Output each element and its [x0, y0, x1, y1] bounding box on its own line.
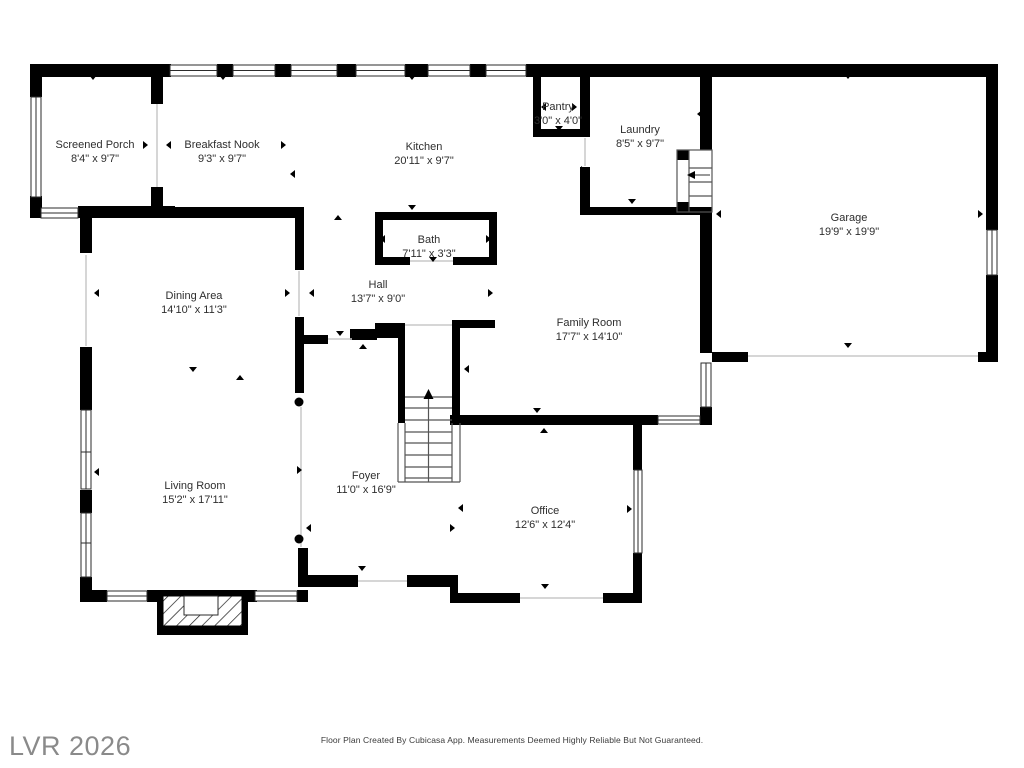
room-name: Living Room	[162, 479, 228, 493]
room-label-bath: Bath 7'11" x 3'3"	[402, 233, 455, 261]
room-label-breakfast-nook: Breakfast Nook 9'3" x 9'7"	[184, 138, 259, 166]
room-name: Dining Area	[161, 289, 227, 303]
room-dimensions: 8'4" x 9'7"	[56, 152, 135, 166]
room-dimensions: 17'7" x 14'10"	[556, 330, 622, 344]
floor-plan-page: Screened Porch 8'4" x 9'7" Breakfast Noo…	[0, 0, 1024, 768]
room-label-garage: Garage 19'9" x 19'9"	[819, 211, 879, 239]
room-name: Kitchen	[394, 140, 454, 154]
room-label-hall: Hall 13'7" x 9'0"	[351, 278, 405, 306]
room-name: Bath	[402, 233, 455, 247]
room-label-office: Office 12'6" x 12'4"	[515, 504, 575, 532]
room-name: Office	[515, 504, 575, 518]
room-name: Screened Porch	[56, 138, 135, 152]
room-dimensions: 7'11" x 3'3"	[402, 247, 455, 261]
room-dimensions: 11'0" x 16'9"	[336, 483, 396, 497]
room-dimensions: 9'3" x 9'7"	[184, 152, 259, 166]
room-name: Laundry	[616, 123, 664, 137]
room-name: Breakfast Nook	[184, 138, 259, 152]
room-dimensions: 3'0" x 4'0"	[534, 114, 582, 128]
room-name: Garage	[819, 211, 879, 225]
room-label-pantry: Pantry 3'0" x 4'0"	[534, 100, 582, 128]
fireplace	[157, 590, 248, 635]
room-dimensions: 13'7" x 9'0"	[351, 292, 405, 306]
staircase-main	[398, 389, 460, 482]
floor-plan-drawing	[0, 0, 1024, 768]
room-dimensions: 14'10" x 11'3"	[161, 303, 227, 317]
room-dimensions: 12'6" x 12'4"	[515, 518, 575, 532]
room-label-kitchen: Kitchen 20'11" x 9'7"	[394, 140, 454, 168]
room-label-laundry: Laundry 8'5" x 9'7"	[616, 123, 664, 151]
watermark-text: LVR 2026	[9, 731, 131, 762]
room-label-foyer: Foyer 11'0" x 16'9"	[336, 469, 396, 497]
steps-down-arrow	[687, 171, 695, 179]
room-dimensions: 15'2" x 17'11"	[162, 493, 228, 507]
room-dimensions: 8'5" x 9'7"	[616, 137, 664, 151]
room-name: Family Room	[556, 316, 622, 330]
room-name: Foyer	[336, 469, 396, 483]
room-dimensions: 19'9" x 19'9"	[819, 225, 879, 239]
room-name: Pantry	[534, 100, 582, 114]
footer-disclaimer: Floor Plan Created By Cubicasa App. Meas…	[0, 735, 1024, 745]
room-dimensions: 20'11" x 9'7"	[394, 154, 454, 168]
room-label-dining-area: Dining Area 14'10" x 11'3"	[161, 289, 227, 317]
room-label-family-room: Family Room 17'7" x 14'10"	[556, 316, 622, 344]
stairs-up-arrow	[424, 389, 434, 399]
room-label-living-room: Living Room 15'2" x 17'11"	[162, 479, 228, 507]
room-label-screened-porch: Screened Porch 8'4" x 9'7"	[56, 138, 135, 166]
room-name: Hall	[351, 278, 405, 292]
